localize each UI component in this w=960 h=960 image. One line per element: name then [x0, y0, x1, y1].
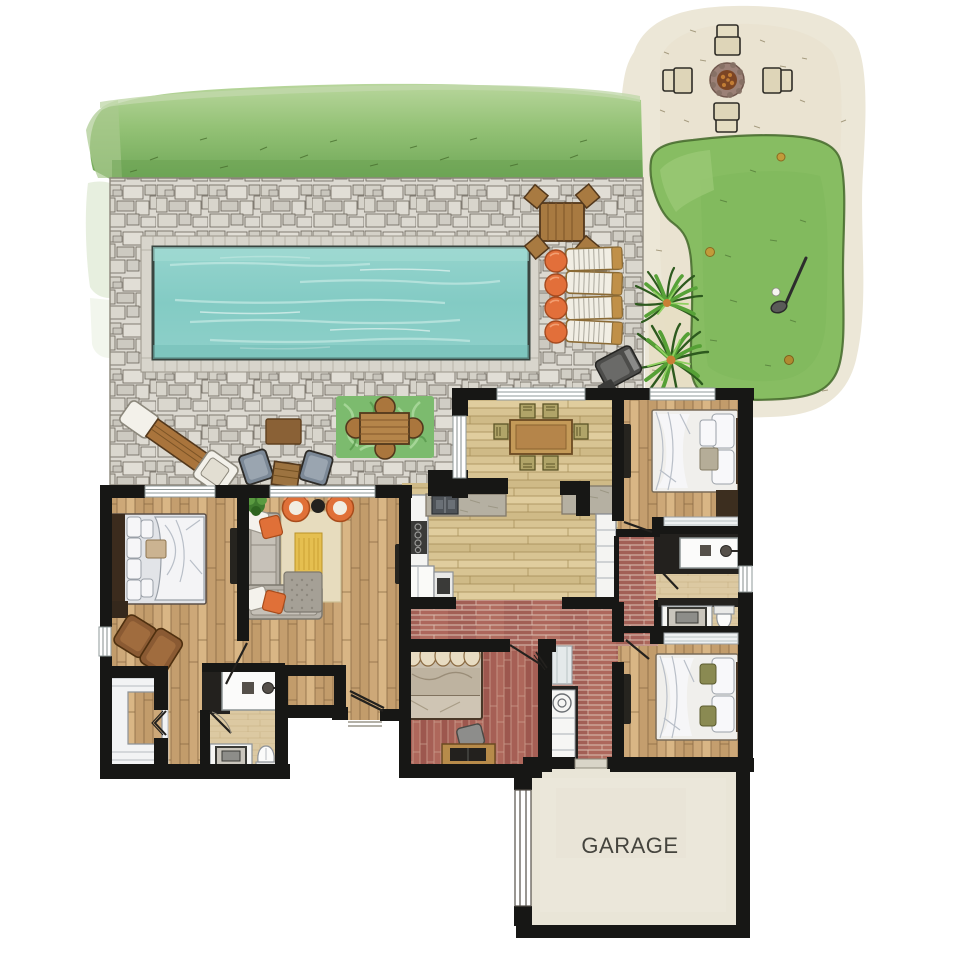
svg-text:GARAGE: GARAGE [581, 833, 678, 858]
